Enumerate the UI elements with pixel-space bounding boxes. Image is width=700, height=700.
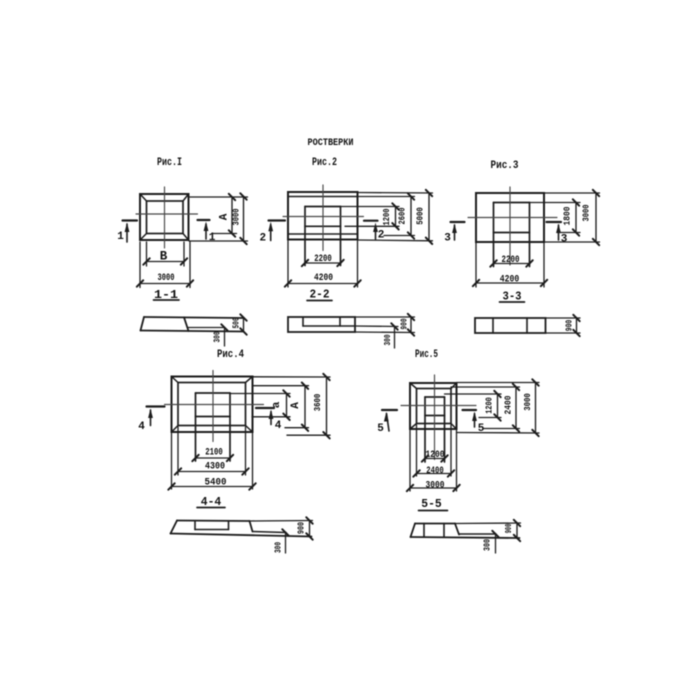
svg-text:A: A xyxy=(290,402,302,409)
svg-text:a: a xyxy=(271,401,283,408)
svg-text:500: 500 xyxy=(232,318,242,329)
svg-text:3000: 3000 xyxy=(522,393,533,411)
svg-text:900: 900 xyxy=(504,524,514,534)
svg-text:300: 300 xyxy=(213,332,223,343)
svg-text:A: A xyxy=(219,213,231,220)
svg-text:2400: 2400 xyxy=(503,395,514,414)
svg-text:Рис.3: Рис.3 xyxy=(491,160,519,172)
svg-text:900: 900 xyxy=(400,319,410,330)
svg-text:Рис.2: Рис.2 xyxy=(312,157,337,169)
svg-text:1200: 1200 xyxy=(484,397,495,414)
svg-text:Рис.5: Рис.5 xyxy=(415,349,438,361)
svg-text:2100: 2100 xyxy=(205,448,223,459)
svg-text:3: 3 xyxy=(561,234,568,246)
svg-text:3000: 3000 xyxy=(581,204,592,221)
svg-text:300: 300 xyxy=(383,335,393,346)
svg-text:5: 5 xyxy=(377,423,384,435)
svg-text:4: 4 xyxy=(275,420,282,432)
svg-text:РОСТВЕРКИ: РОСТВЕРКИ xyxy=(308,138,354,149)
svg-text:2200: 2200 xyxy=(502,255,520,266)
svg-text:4200: 4200 xyxy=(500,275,520,286)
svg-text:2-2: 2-2 xyxy=(310,288,330,302)
svg-text:4: 4 xyxy=(138,421,145,433)
svg-text:3600: 3600 xyxy=(312,394,323,412)
svg-text:Рис.4: Рис.4 xyxy=(217,349,244,361)
svg-text:3000: 3000 xyxy=(231,208,242,225)
svg-text:Рис.I: Рис.I xyxy=(157,157,182,169)
svg-text:900: 900 xyxy=(565,320,575,332)
svg-text:900: 900 xyxy=(297,522,307,534)
svg-text:5-5: 5-5 xyxy=(421,497,442,511)
svg-text:4200: 4200 xyxy=(314,273,333,284)
svg-text:2: 2 xyxy=(259,233,266,245)
svg-text:300: 300 xyxy=(274,542,284,553)
svg-text:2400: 2400 xyxy=(426,466,444,477)
svg-text:1200: 1200 xyxy=(381,208,392,225)
svg-text:1800: 1800 xyxy=(562,206,573,225)
svg-text:3: 3 xyxy=(444,233,451,245)
svg-text:2600: 2600 xyxy=(397,207,408,224)
svg-text:3000: 3000 xyxy=(158,273,175,284)
svg-text:3000: 3000 xyxy=(426,481,445,492)
svg-text:1: 1 xyxy=(117,231,124,243)
svg-text:5000: 5000 xyxy=(415,207,426,225)
svg-text:300: 300 xyxy=(483,539,493,551)
